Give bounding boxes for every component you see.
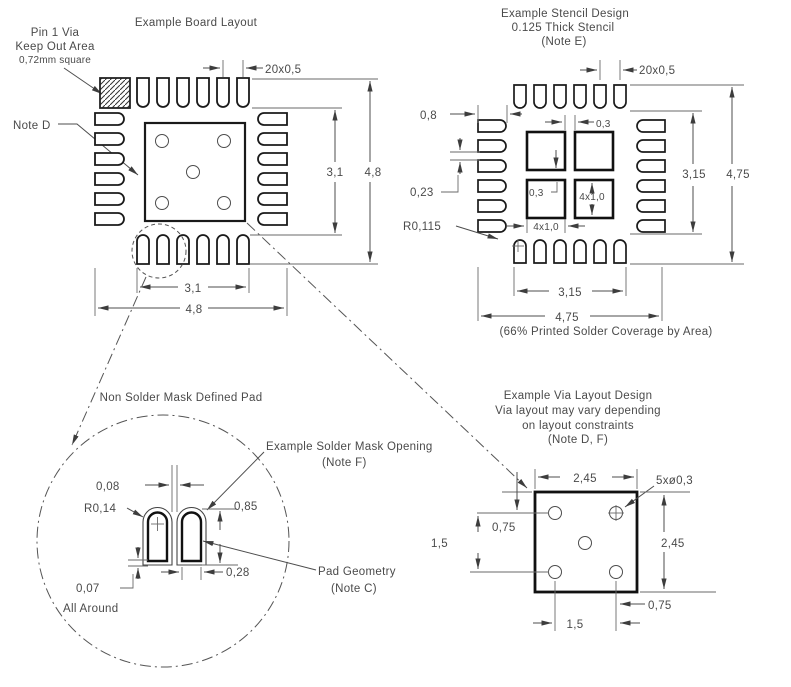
land-pattern-drawing: Example Board Layout Pin 1 Via Keep Out …: [0, 0, 791, 687]
board-layout-view: Example Board Layout Pin 1 Via Keep Out …: [13, 17, 381, 316]
via-dim-top-offset: 0,75: [492, 472, 532, 534]
via-dim-col-gap: 1,5: [533, 581, 640, 631]
stencil-center-apertures: [527, 132, 613, 218]
stencil-dim-pitch-label: 20x0,5: [639, 65, 675, 77]
via-title-line1: Example Via Layout Design: [504, 390, 653, 402]
board-pad-row-top: [137, 78, 249, 107]
board-dim-outer-h-label: 4,8: [186, 304, 203, 316]
stencil-aperture-row-bottom: [514, 240, 626, 263]
board-dim-inner-v-label: 3,1: [327, 167, 344, 179]
via-dim-row-gap: 1,5: [431, 513, 549, 572]
via-dim-right-label: 0,75: [648, 600, 672, 612]
detail-pads: [143, 508, 206, 566]
detail-dim-offset-label: 0,07: [76, 583, 100, 595]
pin1-keepout-label-line1: Pin 1 Via: [31, 27, 80, 39]
via-title-line3: on layout constraints: [522, 420, 634, 432]
via-title-line2: Via layout may vary depending: [495, 405, 661, 417]
stencil-aperture-row-top: [514, 85, 626, 108]
detail-dim-height: 0,85: [202, 501, 258, 565]
nsmd-detail-view: Non Solder Mask Defined Pad 0,08 R0,14 E…: [37, 392, 433, 667]
via-dim-col-gap-label: 1,5: [567, 619, 584, 631]
stencil-dim-horizontal: 3,15 4,75: [478, 267, 662, 324]
via-dim-width: 2,45: [535, 469, 637, 489]
stencil-dim-radius-label: R0,115: [403, 221, 441, 233]
stencil-dim-square-width: 4x1,0: [507, 219, 585, 233]
stencil-dim-pad-len-label: 0,8: [420, 110, 437, 122]
detail-view-circle: [37, 415, 289, 667]
stencil-title-line3: (Note E): [541, 36, 586, 48]
board-dim-vertical: 3,1 4,8: [250, 79, 381, 264]
detail-pad-label-line1: Pad Geometry: [318, 566, 396, 578]
stencil-dim-pitch: 20x0,5: [580, 60, 675, 80]
via-dim-row-gap-label: 1,5: [431, 538, 448, 550]
detail-dim-width-label: 0,28: [226, 567, 250, 579]
stencil-title-line1: Example Stencil Design: [501, 8, 629, 20]
stencil-aperture-col-left: [478, 120, 506, 232]
stencil-dim-pad-length: 0,8: [420, 105, 522, 123]
via-title-line4: (Note D, F): [548, 434, 608, 446]
stencil-title-line2: 0.125 Thick Stencil: [512, 22, 615, 34]
stencil-dim-vertical: 3,15 4,75: [630, 85, 750, 264]
via-dim-height: 2,45: [640, 492, 716, 592]
detail-mask-label-line1: Example Solder Mask Opening: [266, 441, 433, 453]
detail-mask-label-line2: (Note F): [322, 457, 367, 469]
board-pad-col-left: [95, 113, 124, 225]
stencil-coverage-note: (66% Printed Solder Coverage by Area): [499, 326, 712, 338]
stencil-dim-inner-h-label: 3,15: [558, 287, 582, 299]
detail-dim-gap-label: 0,08: [96, 481, 120, 493]
stencil-dim-sq-gap-h-label: 0,3: [596, 119, 611, 130]
pin1-keepout-label-line3: 0,72mm square: [19, 55, 91, 66]
stencil-dim-square-gap-h: 0,3: [545, 115, 611, 130]
stencil-dim-outer-v-label: 4,75: [726, 169, 750, 181]
drawing-canvas: Example Board Layout Pin 1 Via Keep Out …: [0, 0, 791, 687]
leader-to-detail-view: [72, 277, 146, 445]
stencil-view: Example Stencil Design 0.125 Thick Stenc…: [403, 8, 750, 338]
board-layout-title: Example Board Layout: [135, 17, 258, 29]
detail-dim-height-label: 0,85: [234, 501, 258, 513]
via-dim-top-label: 0,75: [492, 522, 516, 534]
note-d-leader-line: [58, 124, 138, 175]
via-dim-height-label: 2,45: [661, 538, 685, 550]
pin1-keepout-area: [100, 78, 130, 108]
board-dim-horizontal: 3,1 4,8: [95, 268, 287, 316]
detail-pad-label-line2: (Note C): [331, 583, 377, 595]
note-d-label: Note D: [13, 120, 51, 132]
board-dim-pitch-label: 20x0,5: [265, 64, 301, 76]
pin1-leader-line: [64, 68, 102, 94]
stencil-dim-sq-gap-v-label: 0,3: [529, 188, 544, 199]
board-thermal-vias: [156, 135, 231, 210]
board-pad-col-right: [258, 113, 287, 225]
right-copper-pad: [182, 513, 201, 562]
detail-dim-width: 0,28: [161, 567, 250, 580]
detail-dim-offset-note: All Around: [63, 603, 118, 615]
stencil-dim-sq-w-label: 4x1,0: [533, 222, 559, 233]
detail-mask-label: Example Solder Mask Opening (Note F): [207, 441, 433, 510]
detail-dim-radius-label: R0,14: [84, 503, 116, 515]
detail-title: Non Solder Mask Defined Pad: [100, 392, 263, 404]
stencil-dim-outer-h-label: 4,75: [555, 312, 579, 324]
stencil-dim-gap-label: 0,23: [410, 187, 434, 199]
stencil-dim-inner-v-label: 3,15: [682, 169, 706, 181]
via-layout-view: Example Via Layout Design Via layout may…: [431, 390, 716, 631]
stencil-aperture-col-right: [637, 120, 665, 232]
via-dim-vias-label: 5xø0,3: [656, 475, 693, 487]
detail-dim-offset: 0,07 All Around: [63, 547, 148, 615]
board-dim-outer-v-label: 4,8: [365, 167, 382, 179]
stencil-dim-gap: 0,23: [410, 138, 480, 199]
board-dim-pitch: 20x0,5: [203, 60, 301, 77]
stencil-dim-sq-h-label: 4x1,0: [579, 192, 605, 203]
board-pad-row-bottom: [137, 235, 249, 264]
via-holes: [549, 505, 625, 579]
board-dim-inner-h-label: 3,1: [185, 283, 202, 295]
detail-dim-radius: R0,14: [84, 503, 143, 517]
via-dim-width-label: 2,45: [573, 473, 597, 485]
pin1-keepout-label-line2: Keep Out Area: [15, 41, 95, 53]
